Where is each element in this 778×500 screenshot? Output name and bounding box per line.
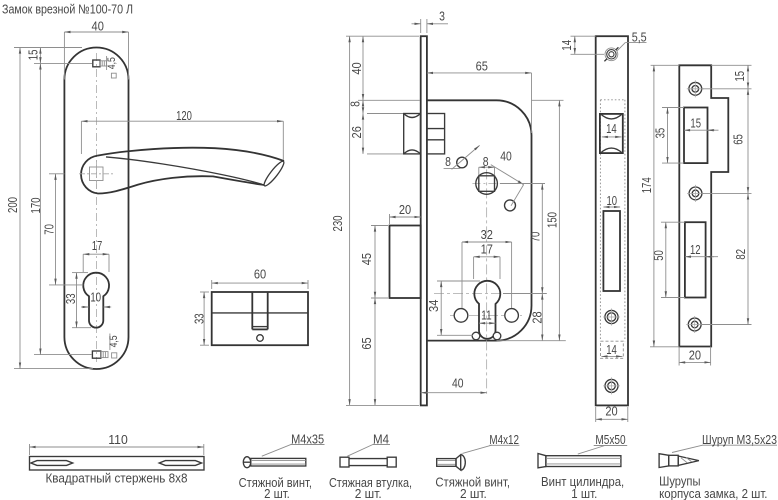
svg-text:Замок врезной №100-70 Л: Замок врезной №100-70 Л: [2, 2, 133, 17]
svg-text:26: 26: [349, 126, 364, 138]
svg-text:230: 230: [330, 216, 345, 232]
svg-text:32: 32: [481, 227, 493, 242]
svg-text:65: 65: [359, 337, 374, 349]
svg-text:65: 65: [730, 134, 745, 145]
svg-text:28: 28: [530, 311, 545, 323]
svg-text:15: 15: [732, 71, 747, 82]
svg-text:4,5: 4,5: [106, 57, 118, 69]
svg-text:150: 150: [545, 212, 560, 228]
svg-text:40: 40: [500, 148, 512, 163]
svg-text:Шуруп М3,5х23: Шуруп М3,5х23: [702, 432, 777, 447]
svg-text:120: 120: [176, 108, 192, 123]
svg-text:35: 35: [653, 128, 668, 139]
svg-text:12: 12: [690, 242, 701, 257]
svg-text:34: 34: [426, 300, 441, 312]
svg-text:60: 60: [254, 267, 266, 282]
svg-text:корпуса замка, 2 шт.: корпуса замка, 2 шт.: [659, 486, 767, 500]
svg-text:4,5: 4,5: [108, 335, 120, 347]
svg-text:2 шт.: 2 шт.: [264, 486, 290, 500]
svg-text:70: 70: [41, 224, 56, 235]
svg-text:2 шт.: 2 шт.: [355, 486, 382, 500]
svg-text:45: 45: [359, 253, 374, 265]
svg-text:20: 20: [605, 404, 617, 419]
svg-text:82: 82: [733, 249, 748, 260]
svg-text:40: 40: [349, 62, 364, 74]
svg-text:33: 33: [191, 313, 206, 324]
svg-text:14: 14: [606, 342, 617, 357]
svg-text:11: 11: [481, 308, 492, 323]
svg-text:40: 40: [92, 18, 104, 33]
svg-text:14: 14: [606, 121, 617, 136]
svg-text:2 шт.: 2 шт.: [460, 486, 487, 500]
svg-text:М4: М4: [373, 432, 389, 447]
svg-text:Квадратный стержень 8х8: Квадратный стержень 8х8: [46, 471, 188, 486]
svg-text:10: 10: [607, 193, 618, 208]
svg-text:174: 174: [639, 177, 654, 193]
svg-text:17: 17: [481, 242, 493, 257]
svg-text:170: 170: [28, 198, 43, 214]
svg-text:М4х35: М4х35: [291, 432, 324, 447]
svg-text:1 шт.: 1 шт.: [571, 486, 597, 500]
svg-text:8: 8: [445, 154, 451, 169]
svg-text:70: 70: [527, 232, 542, 243]
svg-text:17: 17: [92, 238, 103, 253]
svg-text:8: 8: [483, 154, 489, 169]
svg-text:15: 15: [690, 116, 701, 131]
svg-text:М5х50: М5х50: [595, 432, 625, 447]
svg-text:110: 110: [108, 432, 128, 447]
svg-text:65: 65: [476, 58, 488, 73]
svg-text:20: 20: [689, 348, 701, 363]
svg-text:5,5: 5,5: [632, 30, 647, 45]
svg-text:200: 200: [5, 197, 20, 213]
svg-text:50: 50: [651, 250, 666, 261]
svg-text:40: 40: [452, 376, 464, 391]
svg-text:20: 20: [399, 202, 411, 217]
svg-text:3: 3: [439, 8, 445, 23]
svg-text:М4х12: М4х12: [489, 432, 519, 447]
svg-text:10: 10: [90, 290, 101, 305]
svg-text:33: 33: [63, 294, 78, 305]
svg-text:15: 15: [26, 50, 41, 61]
svg-text:14: 14: [559, 40, 574, 51]
